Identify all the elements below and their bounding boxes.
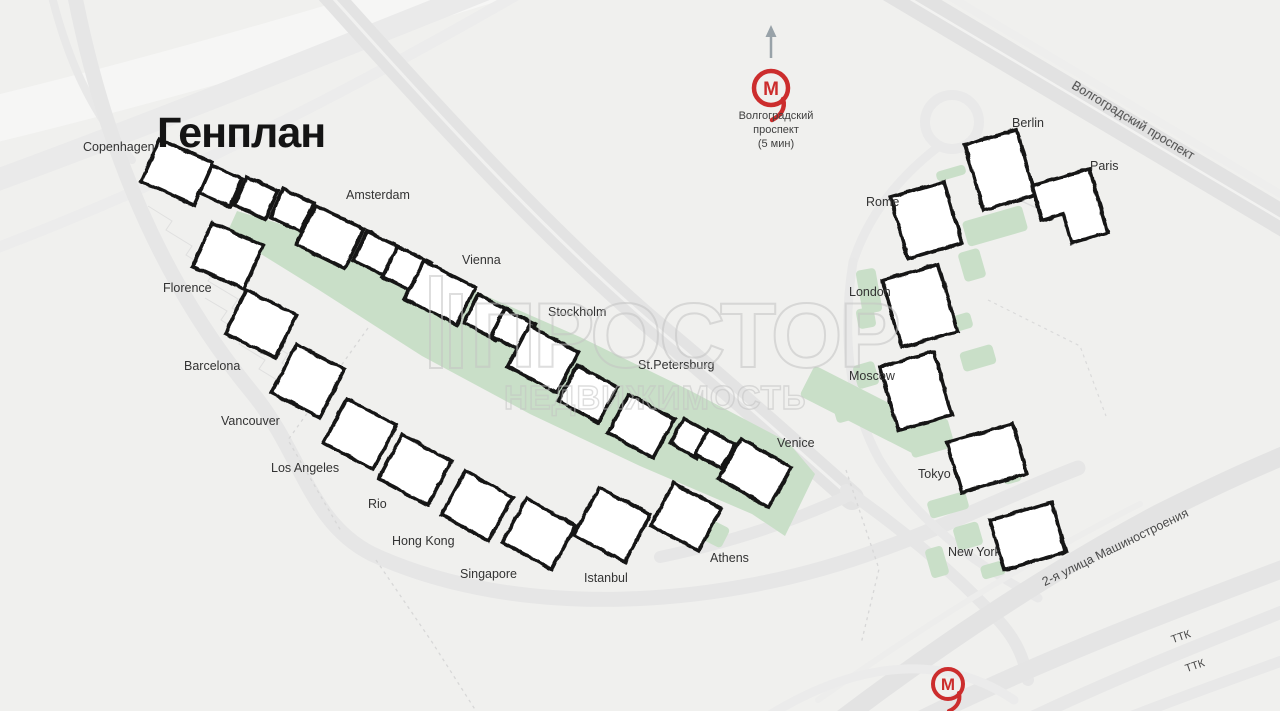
building-label: Rome (866, 195, 899, 209)
building-label: Paris (1090, 159, 1118, 173)
watermark-brand: ПРОСТОР (470, 285, 898, 387)
building-singapore[interactable] (502, 499, 575, 570)
building-label: Singapore (460, 567, 517, 581)
green-patch (962, 205, 1029, 247)
building-barcelona[interactable] (225, 290, 296, 358)
building-vancouver[interactable] (272, 345, 345, 418)
watermark-subtitle: НЕДВИЖИМОСТЬ (504, 379, 807, 416)
building-hong-kong[interactable] (441, 471, 512, 541)
building-label: Florence (163, 281, 212, 295)
green-patch (924, 545, 950, 579)
dashed-boundary (988, 300, 1106, 416)
building-label: New York (948, 545, 1002, 559)
metro-caption-line2: проспект (753, 124, 799, 136)
building-istanbul[interactable] (574, 488, 651, 563)
building-label: Venice (777, 436, 815, 450)
genplan-canvas: CopenhagenAmsterdamViennaStockholmSt.Pet… (0, 0, 1280, 711)
building-rome[interactable] (890, 182, 961, 259)
page-title: Генплан (157, 112, 325, 155)
building-label: Vienna (462, 253, 501, 267)
north-arrow-head (766, 25, 777, 37)
ramp-loop (925, 95, 979, 149)
green-patch (959, 344, 997, 373)
building-label: Athens (710, 551, 749, 565)
building-label: Istanbul (584, 571, 628, 585)
building-label: Amsterdam (346, 188, 410, 202)
genplan-map: CopenhagenAmsterdamViennaStockholmSt.Pet… (0, 0, 1280, 711)
building-rio[interactable] (379, 435, 452, 505)
building-label: Los Angeles (271, 461, 339, 475)
green-patch (935, 164, 967, 182)
metro-marker-top: М Волгоградский проспект (5 мин) (739, 25, 814, 150)
street-label-ttk-2: ТТК (1184, 657, 1207, 675)
metro-m-icon: М (763, 79, 779, 100)
metro-caption-line3: (5 мин) (758, 138, 794, 150)
metro-caption-line1: Волгоградский (739, 110, 814, 122)
building-label: Copenhagen (83, 140, 155, 154)
building-label: Tokyo (918, 467, 951, 481)
building-los-angeles[interactable] (324, 399, 397, 469)
building-berlin[interactable] (965, 130, 1036, 210)
green-patch (957, 248, 986, 283)
building-label: Rio (368, 497, 387, 511)
building-paris[interactable] (1032, 169, 1108, 249)
building-new-york[interactable] (990, 502, 1066, 570)
building-label: Barcelona (184, 359, 240, 373)
building-label: Berlin (1012, 116, 1044, 130)
building-label: Hong Kong (392, 534, 455, 548)
metro-m-icon: М (941, 675, 955, 694)
building-label: Vancouver (221, 414, 280, 428)
